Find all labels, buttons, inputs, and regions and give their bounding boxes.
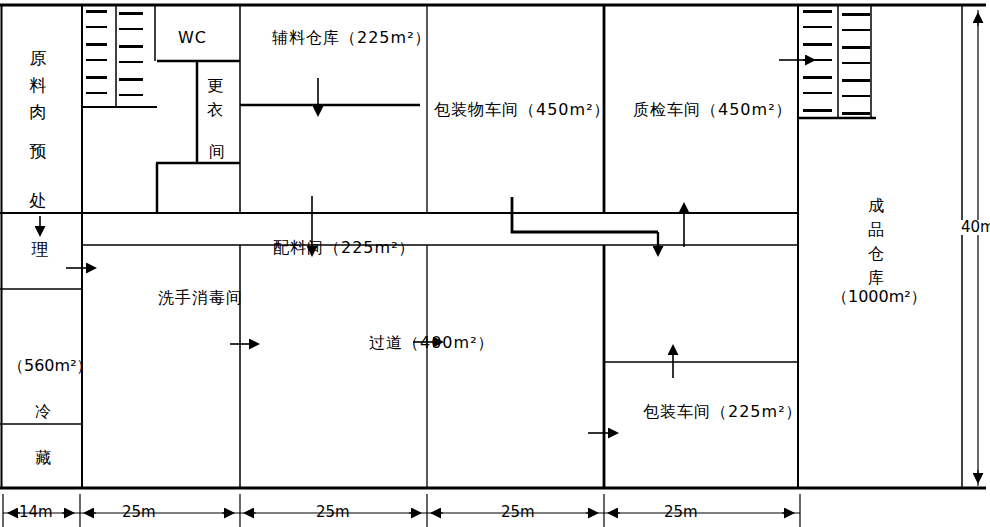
corridor-step-divider <box>512 197 658 248</box>
room-label-raw-meat-part2: 预处 <box>28 127 48 225</box>
room-label-aux-warehouse: 辅料仓库（225m²） <box>272 29 432 47</box>
room-label-finished-warehouse-area: （1000m²） <box>832 288 927 306</box>
dim-label-25m-1: 25m <box>122 505 156 520</box>
room-label-cold-storage-area: （560m²） <box>8 357 93 375</box>
room-label-hand-washing-room: 洗手消毒间 <box>158 289 243 307</box>
factory-floor-plan: 原料肉 预处 理 （560m²） 冷 藏 WC 更衣 间 辅料仓库（225m²）… <box>0 0 990 527</box>
stairs-left-column-b <box>119 12 143 107</box>
dim-label-25m-3: 25m <box>501 505 535 520</box>
stairs-right-column-a <box>803 10 832 116</box>
dim-label-40m: 40m <box>960 220 990 235</box>
dim-label-25m-2: 25m <box>316 505 350 520</box>
room-label-quality-inspection-workshop: 质检车间（450m²） <box>633 101 793 119</box>
stairs-right-column-b <box>842 13 870 116</box>
room-label-cold-storage-char2: 藏 <box>35 449 52 467</box>
walls <box>0 5 986 488</box>
room-label-cold-storage-char1: 冷 <box>35 403 52 421</box>
room-label-changing-room-part2: 间 <box>207 143 227 161</box>
room-label-changing-room-part1: 更衣 <box>205 74 225 122</box>
step-divider-line <box>512 197 658 232</box>
stairs-left-column-a <box>86 10 107 107</box>
room-label-raw-meat-part1: 原料肉 <box>28 45 48 126</box>
room-label-raw-meat-part3: 理 <box>30 240 50 258</box>
room-label-aisle: 过道（400m²） <box>369 334 495 352</box>
dim-label-14m: 14m <box>19 505 53 520</box>
room-label-packaging-material-workshop: 包装物车间（450m²） <box>434 101 611 119</box>
room-label-finished-warehouse: 成品仓库 <box>866 194 886 290</box>
room-label-packing-workshop: 包装车间（225m²） <box>643 403 803 421</box>
dim-label-25m-4: 25m <box>664 505 698 520</box>
room-label-ingredient-room: 配料间（225m²） <box>273 239 416 257</box>
room-label-wc: WC <box>178 29 207 47</box>
